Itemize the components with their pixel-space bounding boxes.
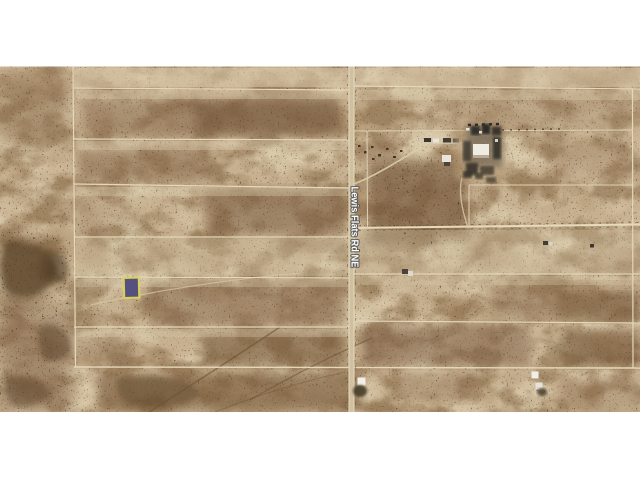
svg-text:Lewis Flats Rd NE: Lewis Flats Rd NE [349,187,361,268]
